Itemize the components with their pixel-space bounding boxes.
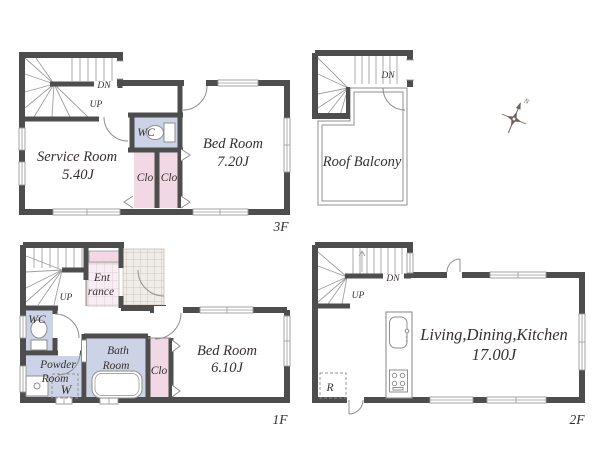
- kitchen-counter: [386, 312, 412, 398]
- floor-plan-drawing: Service Room 5.40J Bed Room 7.20J WC Clo…: [0, 0, 600, 450]
- service-room-door-arc: [104, 117, 128, 141]
- kitchen-sink: [390, 317, 408, 348]
- ldk-size: 17.00J: [472, 345, 517, 364]
- up-label-1f: UP: [60, 293, 73, 303]
- floor-plan-canvas: Service Room 5.40J Bed Room 7.20J WC Clo…: [0, 0, 600, 450]
- bath-sliding-door: [82, 340, 87, 362]
- stair-walls-roof: [315, 53, 410, 119]
- closet-door-mark-1f-bottom: [172, 385, 180, 397]
- roof-balcony-label: Roof Balcony: [322, 154, 402, 170]
- bedroom-size-3f: 7.20J: [217, 154, 249, 170]
- down-label-roof: DN: [380, 71, 395, 81]
- floor-label-1f: 1F: [273, 412, 289, 427]
- plan-roof: DN Roof Balcony: [315, 53, 414, 205]
- entrance-label-line1: Ent: [93, 272, 111, 284]
- bath-label-line1: Bath: [107, 345, 129, 357]
- up-label-3f: UP: [90, 100, 103, 110]
- powder-label-line1: Powder: [39, 359, 76, 371]
- closet-right-label-3f: Clo: [161, 172, 178, 184]
- wc-label-3f: WC: [137, 127, 155, 139]
- porch-tile-1f: [123, 249, 164, 305]
- entrance-tile-1f: [87, 263, 119, 306]
- plan-2f: Living,Dining,Kitchen 17.00J R DN UP 2F: [315, 245, 585, 427]
- washer-label: W: [61, 383, 73, 397]
- floor-label-2f: 2F: [570, 412, 586, 427]
- plan-1f: WC Ent rance Powder Room W Bath Room Clo…: [20, 245, 290, 427]
- bedroom-size-1f: 6.10J: [211, 360, 243, 376]
- north-arrow: [516, 101, 523, 109]
- up-label-2f: UP: [352, 291, 365, 301]
- closet-door-mark-1f-top: [172, 340, 180, 352]
- compass-rose: N: [496, 91, 535, 138]
- floor-label-3f: 3F: [273, 219, 290, 234]
- roof-stair-door-gap: [406, 60, 414, 80]
- entrance-label-line2: rance: [88, 286, 114, 298]
- down-label-2f: DN: [385, 274, 400, 284]
- service-room-size: 5.40J: [62, 167, 94, 183]
- balcony-outline: [318, 88, 407, 205]
- down-label-3f: DN: [96, 81, 111, 91]
- plan-3f: Service Room 5.40J Bed Room 7.20J WC Clo…: [19, 55, 290, 234]
- exterior-walls-2f: [315, 245, 582, 400]
- staircase-1f: [26, 248, 82, 305]
- ldk-label: Living,Dining,Kitchen: [419, 325, 568, 344]
- bedroom-door-arc-1f: [155, 313, 181, 339]
- bathtub: [92, 371, 142, 398]
- bedroom-label-1f: Bed Room: [197, 343, 257, 359]
- staircase-roof: [318, 56, 397, 116]
- north-label: N: [522, 96, 531, 106]
- shoe-cabinet-1f: [89, 251, 119, 262]
- service-room-label: Service Room: [37, 149, 117, 165]
- closet-label-1f: Clo: [151, 365, 168, 377]
- balcony-door-arc: [383, 88, 405, 110]
- closet-left-label-3f: Clo: [137, 172, 154, 184]
- bedroom-door-arc-3f: [183, 86, 207, 110]
- bedroom-label-3f: Bed Room: [203, 136, 263, 152]
- wc-door-arc-1f: [55, 314, 79, 338]
- wc-label-1f: WC: [28, 314, 46, 326]
- bath-label-line2: Room: [102, 360, 130, 372]
- top-door-2f: [447, 259, 460, 272]
- balcony-railing: [322, 92, 403, 201]
- refrigerator-label: R: [325, 382, 333, 394]
